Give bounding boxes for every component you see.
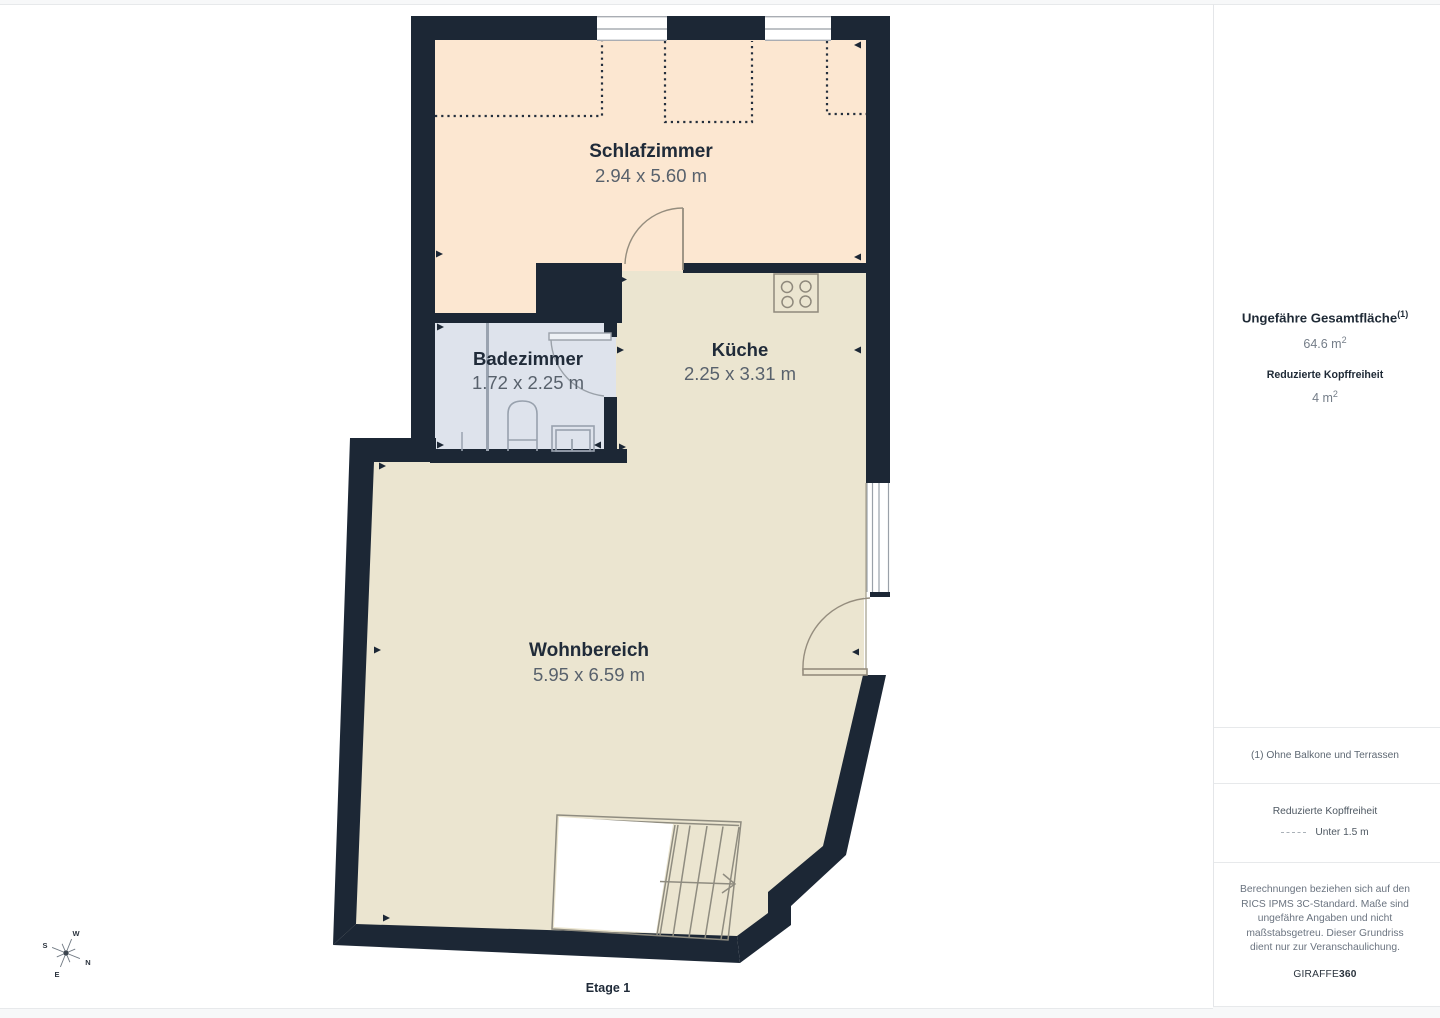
svg-text:N: N <box>85 958 90 967</box>
svg-text:Badezimmer: Badezimmer <box>473 348 583 369</box>
svg-text:2.25 x 3.31 m: 2.25 x 3.31 m <box>684 363 796 384</box>
svg-text:Schlafzimmer: Schlafzimmer <box>589 141 713 162</box>
svg-text:W: W <box>72 929 80 938</box>
svg-text:5.95 x 6.59 m: 5.95 x 6.59 m <box>533 664 645 685</box>
svg-text:S: S <box>42 941 47 950</box>
svg-text:Küche: Küche <box>712 339 769 360</box>
svg-text:Etage 1: Etage 1 <box>586 981 631 995</box>
svg-text:2.94 x 5.60 m: 2.94 x 5.60 m <box>595 165 707 186</box>
svg-text:E: E <box>54 970 59 979</box>
svg-text:1.72 x 2.25 m: 1.72 x 2.25 m <box>472 372 584 393</box>
svg-text:Wohnbereich: Wohnbereich <box>529 640 649 661</box>
